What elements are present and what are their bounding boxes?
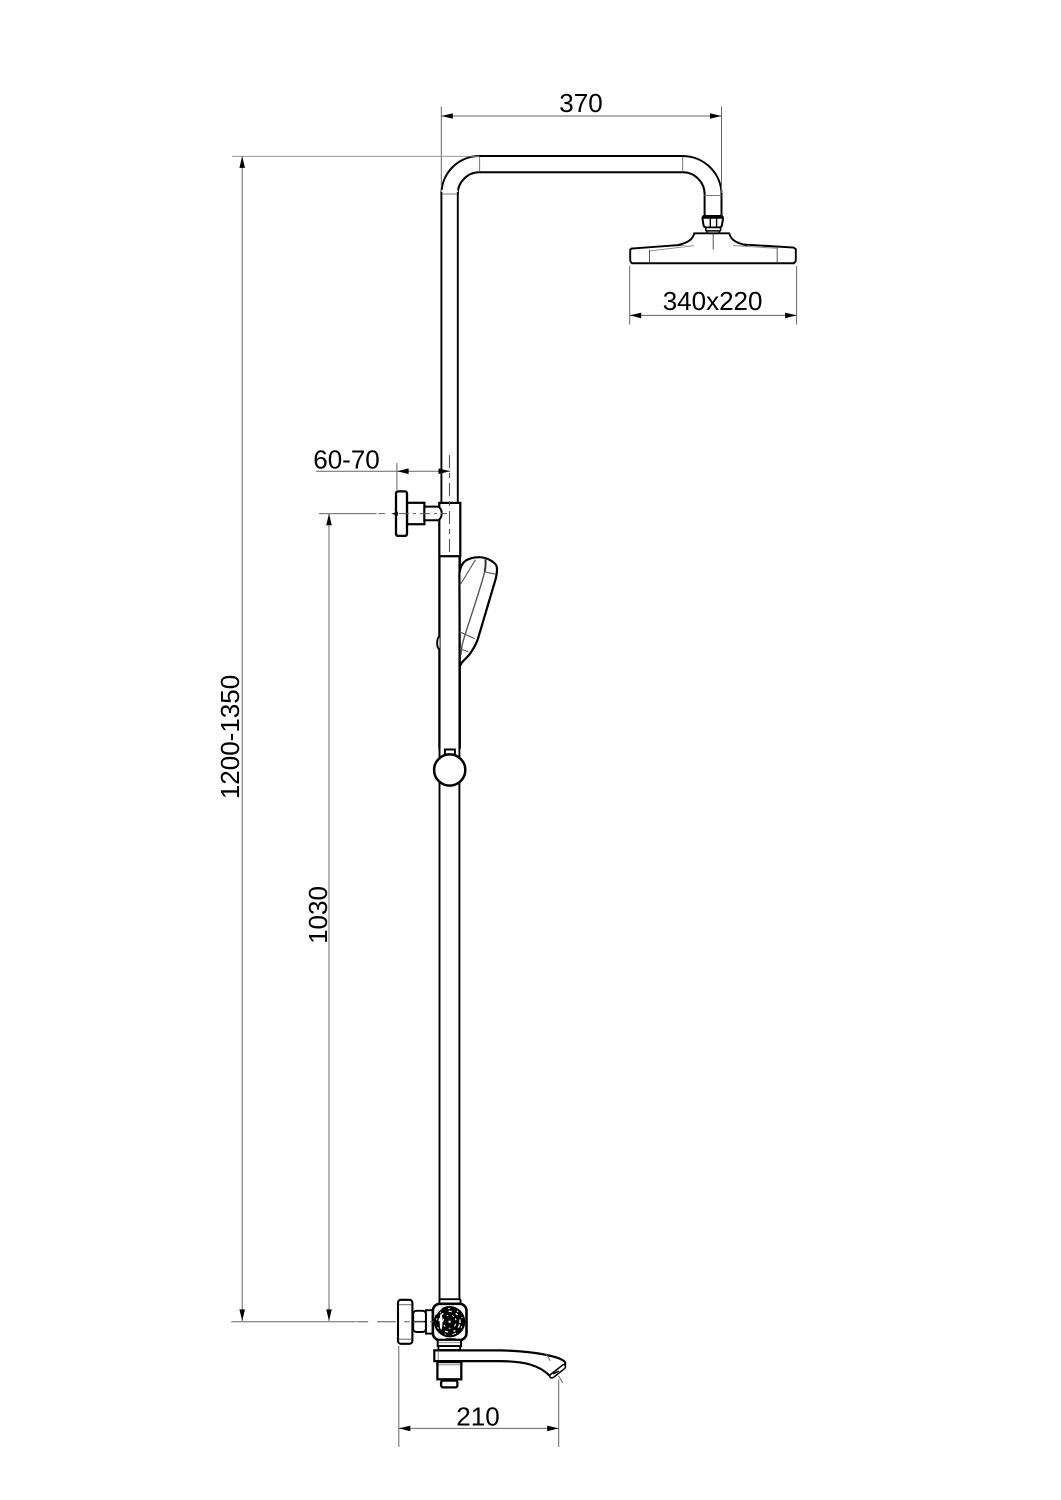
svg-text:60-70: 60-70 — [313, 445, 380, 475]
svg-text:370: 370 — [559, 88, 602, 118]
svg-text:210: 210 — [456, 1402, 499, 1432]
svg-text:340x220: 340x220 — [663, 286, 763, 316]
svg-text:1200-1350: 1200-1350 — [215, 675, 245, 799]
svg-text:1030: 1030 — [303, 886, 333, 944]
